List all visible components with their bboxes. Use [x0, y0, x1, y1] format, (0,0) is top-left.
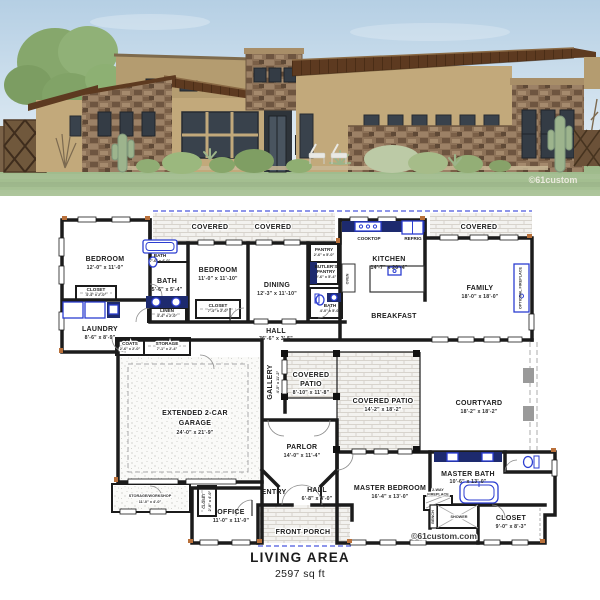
bath1-tub — [143, 240, 177, 253]
plan-watermark: ©61custom.com — [411, 531, 477, 541]
dims-butlers: 2'-6" x 5'-4" — [316, 275, 337, 279]
living-area-title: LIVING AREA — [250, 550, 350, 565]
label-parlor: PARLOR — [287, 444, 318, 451]
plan-canvas: ©61custom — [0, 0, 600, 600]
workshop-floor — [114, 486, 188, 510]
label-laundry: LAUNDRY — [82, 326, 118, 333]
label-covered-1: COVERED — [192, 224, 229, 231]
label-office: OFFICE — [217, 509, 244, 516]
office-closet-box — [198, 486, 216, 516]
label-cooktop: COOKTOP — [357, 236, 380, 241]
dims-closet2: 7'-4" x 2'-0" — [208, 309, 229, 313]
dims-kitchen: 14'-7" x 20'-4" — [371, 265, 408, 271]
dims-bath3: 4'-0" x 5'-0" — [320, 309, 341, 313]
house-plan-page: ©61custom — [0, 0, 600, 600]
label-closet1: CLOSET — [87, 287, 106, 292]
label-kitchen: KITCHEN — [372, 256, 405, 263]
label-garage-1: EXTENDED 2-CAR — [162, 410, 228, 417]
dims-linen: 4'-4" x 2'-0" — [157, 314, 178, 318]
covered-strip-left — [153, 213, 335, 243]
label-breakfast: BREAKFAST — [371, 313, 417, 320]
label-bench: BENCH — [431, 510, 435, 524]
label-hall: HALL — [266, 328, 286, 335]
dims-bedroom1: 12'-0" x 11'-0" — [87, 265, 124, 271]
dryer — [85, 302, 105, 318]
dims-parlor: 14'-0" x 11'-4" — [284, 453, 321, 459]
pilaster-1 — [523, 368, 534, 383]
dims-master-bedroom: 16'-4" x 13'-0" — [372, 494, 409, 500]
dims-gallery: 4'-5" x 11'-2" — [276, 371, 280, 394]
dims-master-bath: 10'-6" x 13'-0" — [450, 479, 487, 485]
dims-storage: 7'-1" x 2'-4" — [157, 347, 178, 351]
label-master-closet: CLOSET — [496, 515, 527, 522]
living-area-sqft: 2597 sq ft — [275, 568, 325, 580]
center-tower — [244, 48, 304, 110]
plan-footer: LIVING AREA 2597 sq ft — [250, 550, 350, 580]
label-master-bath: MASTER BATH — [441, 471, 495, 478]
label-gallery: GALLERY — [267, 364, 274, 399]
dims-master-closet: 9'-0" x 8'-3" — [496, 524, 527, 530]
label-courtyard: COURTYARD — [456, 400, 503, 407]
label-butlers-2: PANTRY — [317, 269, 335, 274]
label-coats: COATS — [122, 341, 138, 346]
dims-hall-front: 6'-8" x 4'-0" — [302, 496, 333, 502]
render-watermark: ©61custom — [529, 175, 578, 185]
dims-workshop: 11'-0" x 4'-0" — [139, 500, 162, 504]
house-rendering: ©61custom — [0, 0, 600, 196]
label-optional-fireplace: OPTIONAL FIREPLACE — [519, 266, 523, 309]
label-entry: ENTRY — [262, 489, 287, 496]
dims-dining: 12'-3" x 11'-10" — [257, 291, 297, 297]
label-pantry: PANTRY — [315, 247, 333, 252]
pilaster-2 — [523, 406, 534, 421]
dims-pantry: 2'-6" x 5'-0" — [314, 253, 335, 257]
label-dining: DINING — [264, 282, 291, 289]
label-front-porch: FRONT PORCH — [276, 529, 331, 536]
dims-courtyard: 18'-2" x 18'-2" — [461, 409, 498, 415]
dims-bath1: 7'-6" x 4'-0" — [150, 259, 171, 263]
label-hall-front: HALL — [307, 487, 327, 494]
master-sink-2 — [482, 453, 493, 461]
label-fireplace-1: 2-WAY — [432, 488, 444, 492]
label-office-closet: CLOSET — [202, 493, 206, 509]
label-workshop: STORAGE/WORKSHOP — [129, 494, 172, 498]
dims-office: 11'-0" x 11'-0" — [213, 518, 250, 524]
dims-laundry: 8'-6" x 8'-9" — [85, 335, 116, 341]
label-oven: OVEN — [346, 273, 350, 284]
dims-garage: 24'-0" x 21'-9" — [177, 430, 214, 436]
label-bath2: BATH — [157, 278, 177, 285]
master-sink-1 — [447, 453, 458, 461]
label-covered-2: COVERED — [255, 224, 292, 231]
label-family: FAMILY — [467, 285, 494, 292]
dims-office-closet: 2'-8" x 4'-0" — [208, 491, 212, 512]
dims-coats: 2'-6" x 2'-0" — [120, 347, 141, 351]
label-fireplace-2: FIREPLACE — [427, 493, 449, 497]
label-garage-2: GARAGE — [179, 420, 212, 427]
dims-bedroom2: 11'-0" x 11'-10" — [198, 276, 238, 282]
label-bedroom2: BEDROOM — [199, 267, 238, 274]
label-refrig: REFRIG — [404, 236, 422, 241]
label-bath1: BATH — [154, 253, 167, 258]
cooktop-fixture — [355, 222, 381, 231]
dims-patio1: 8'-10" x 11'-8" — [293, 390, 330, 396]
dims-family: 18'-0" x 18'-0" — [462, 294, 499, 300]
washer — [63, 302, 83, 318]
colonnade-dashed — [530, 342, 537, 450]
floor-plan: COVERED COVERED COVERED BEDROOM 12'-0" x… — [59, 211, 557, 546]
label-linen: LINEN — [160, 308, 174, 313]
bath2-sink-2 — [172, 298, 180, 306]
label-bedroom1: BEDROOM — [86, 256, 125, 263]
right-fence — [574, 130, 600, 166]
dims-closet1: 4'-4" x 2'-0" — [86, 293, 107, 297]
dims-patio2: 14'-2" x 18'-2" — [365, 407, 402, 413]
label-master-bedroom: MASTER BEDROOM — [354, 485, 426, 492]
label-covered-3: COVERED — [461, 224, 498, 231]
label-storage: STORAGE — [156, 341, 179, 346]
bath2-sink-1 — [152, 298, 160, 306]
label-shower: SHOWER — [450, 515, 467, 519]
label-closet2: CLOSET — [209, 303, 228, 308]
wc-toilet — [524, 457, 533, 468]
dims-hall: 36'-6" x 3'-5" — [259, 336, 293, 342]
label-patio1-2: PATIO — [300, 381, 322, 388]
label-bath3: BATH — [324, 303, 337, 308]
label-patio2: COVERED PATIO — [353, 398, 414, 405]
label-patio1-1: COVERED — [293, 372, 330, 379]
laundry-sink — [109, 305, 118, 314]
dims-bath2: 5'-6" x 5'-4" — [152, 287, 183, 293]
garage-floor — [120, 357, 260, 480]
